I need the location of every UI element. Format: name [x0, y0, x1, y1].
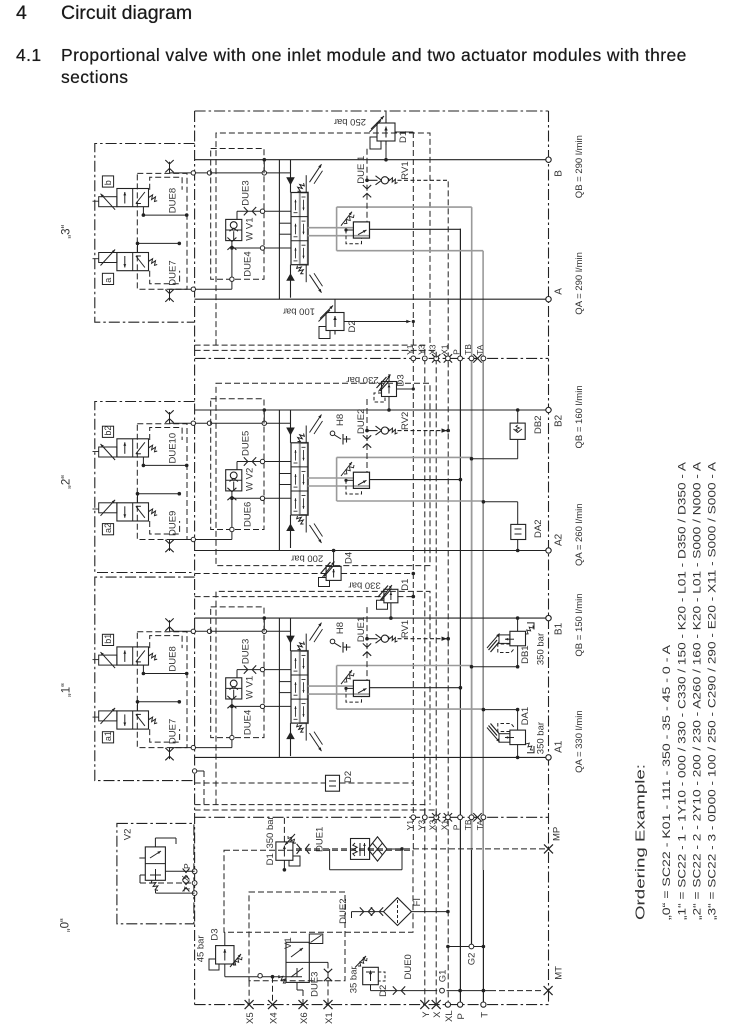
svg-text:QA = 290 l/min: QA = 290 l/min: [574, 252, 585, 315]
svg-text:350 bar: 350 bar: [536, 633, 547, 665]
svg-text:„0“: „0“: [59, 918, 71, 932]
svg-text:B2: B2: [554, 414, 565, 427]
svg-text:X6: X6: [299, 1012, 310, 1024]
svg-text:DB2: DB2: [533, 416, 544, 434]
svg-text:„2“ = SC22 - 2 - 2Y10 - 20: „2“ = SC22 - 2 - 2Y10 - 200 / 230 - A260…: [692, 461, 704, 920]
svg-text:QA = 260 l/min: QA = 260 l/min: [574, 503, 585, 566]
svg-text:DUE1: DUE1: [356, 617, 367, 642]
svg-text:„2“: „2“: [61, 475, 73, 489]
svg-text:G1: G1: [438, 970, 449, 983]
svg-text:DUE4: DUE4: [243, 251, 254, 276]
svg-text:DUE8: DUE8: [168, 188, 179, 213]
svg-text:XL: XL: [444, 1010, 455, 1022]
svg-text:DUE5: DUE5: [241, 431, 252, 456]
svg-text:B1: B1: [554, 622, 565, 635]
svg-text:X: X: [432, 1011, 443, 1018]
svg-text:Y1: Y1: [405, 820, 415, 831]
svg-text:DUE3: DUE3: [241, 180, 252, 205]
svg-text:G2: G2: [467, 953, 478, 966]
svg-text:RV1: RV1: [400, 161, 411, 179]
svg-text:D2: D2: [347, 320, 358, 332]
svg-text:„1“: „1“: [61, 683, 73, 697]
svg-text:T: T: [479, 1012, 490, 1018]
svg-text:X3: X3: [428, 820, 438, 831]
svg-text:DUE3: DUE3: [241, 639, 252, 664]
svg-text:V1: V1: [283, 937, 294, 949]
svg-text:D3: D3: [396, 374, 407, 386]
svg-text:D3: D3: [209, 928, 220, 940]
svg-text:DUE2: DUE2: [338, 898, 349, 923]
svg-text:DUE4: DUE4: [243, 710, 254, 735]
svg-text:RV2: RV2: [400, 412, 411, 430]
svg-text:QB = 290 l/min: QB = 290 l/min: [574, 135, 585, 198]
svg-text:X5: X5: [245, 1012, 256, 1024]
svg-text:TA: TA: [475, 344, 485, 355]
svg-text:W V1: W V1: [245, 676, 256, 699]
svg-text:„3“ = SC22 - 3 - 0D00 - 10: „3“ = SC22 - 3 - 0D00 - 100 / 250 - C290…: [707, 461, 719, 920]
svg-text:D2: D2: [343, 771, 354, 783]
svg-text:RV1: RV1: [400, 620, 411, 638]
svg-text:W V2: W V2: [245, 468, 256, 491]
svg-text:„3“: „3“: [61, 224, 73, 238]
svg-text:350 bar: 350 bar: [536, 722, 547, 754]
svg-text:D1: D1: [265, 853, 276, 865]
svg-text:P: P: [452, 824, 462, 830]
svg-text:D1: D1: [400, 579, 411, 591]
svg-text:b2: b2: [103, 426, 113, 436]
svg-text:DUE0: DUE0: [403, 954, 414, 979]
svg-text:350 bar: 350 bar: [265, 816, 276, 848]
svg-text:DUE 1: DUE 1: [356, 156, 367, 184]
svg-text:B: B: [554, 170, 565, 177]
svg-text:P: P: [182, 863, 192, 869]
svg-text:X1: X1: [324, 1012, 335, 1024]
svg-text:W V1: W V1: [245, 217, 256, 240]
svg-text:H8: H8: [335, 622, 346, 634]
svg-text:DUE1: DUE1: [314, 827, 325, 852]
svg-text:TB: TB: [463, 344, 473, 355]
svg-text:X1: X1: [439, 344, 449, 355]
svg-text:a: a: [103, 278, 113, 283]
svg-text:DUE8: DUE8: [168, 646, 179, 671]
svg-text:DB1: DB1: [520, 645, 531, 663]
svg-text:DA1: DA1: [520, 707, 531, 725]
svg-text:„0“ = SC22 - K01 - 111 - 3: „0“ = SC22 - K01 - 111 - 350 - 35 - 45 -…: [661, 644, 673, 920]
svg-text:A: A: [554, 288, 565, 295]
svg-text:DUE9: DUE9: [168, 511, 179, 536]
svg-text:A2: A2: [554, 533, 565, 546]
svg-text:MP: MP: [552, 827, 563, 841]
svg-text:200 bar: 200 bar: [291, 553, 323, 564]
svg-text:45 bar: 45 bar: [195, 935, 206, 962]
svg-text:a1: a1: [103, 731, 113, 741]
svg-text:MT: MT: [554, 966, 565, 980]
svg-text:D1: D1: [398, 131, 409, 143]
svg-text:„1“ = SC22 - 1 - 1Y10 - 00: „1“ = SC22 - 1 - 1Y10 - 000 / 330 - C330…: [677, 461, 689, 920]
svg-text:A1: A1: [554, 740, 565, 753]
svg-text:DUE7: DUE7: [168, 260, 179, 285]
svg-text:330 bar: 330 bar: [348, 580, 380, 591]
svg-text:P: P: [456, 1013, 467, 1019]
svg-text:Y1: Y1: [405, 344, 415, 355]
svg-text:DUE7: DUE7: [168, 719, 179, 744]
svg-text:230 bar: 230 bar: [346, 374, 378, 385]
svg-text:P: P: [452, 349, 462, 355]
svg-text:b1: b1: [103, 634, 113, 644]
svg-text:Y3: Y3: [416, 820, 426, 831]
svg-text:V2: V2: [122, 829, 133, 841]
svg-text:FI: FI: [412, 898, 423, 906]
svg-text:DUE3: DUE3: [309, 972, 320, 997]
svg-text:TA: TA: [475, 820, 485, 831]
svg-text:Y: Y: [421, 1011, 432, 1018]
svg-text:QA = 330 l/min: QA = 330 l/min: [574, 710, 585, 773]
svg-text:QB = 150 l/min: QB = 150 l/min: [574, 593, 585, 656]
svg-text:X1: X1: [439, 820, 449, 831]
svg-text:D4: D4: [344, 552, 355, 564]
svg-text:DUE10: DUE10: [168, 433, 179, 464]
svg-text:35 bar: 35 bar: [349, 966, 360, 993]
svg-text:X4: X4: [269, 1012, 280, 1024]
svg-text:QB = 160 l/min: QB = 160 l/min: [574, 385, 585, 448]
svg-text:DUE2: DUE2: [356, 409, 367, 434]
svg-text:b: b: [103, 180, 113, 185]
svg-text:DUE6: DUE6: [243, 502, 254, 527]
svg-text:H8: H8: [335, 414, 346, 426]
svg-text:DA2: DA2: [533, 520, 544, 538]
svg-text:a2: a2: [103, 523, 113, 533]
svg-text:Ordering Example:: Ordering Example:: [634, 764, 648, 920]
svg-text:TB: TB: [463, 819, 473, 830]
svg-text:100 bar: 100 bar: [283, 306, 315, 317]
svg-text:250 bar: 250 bar: [334, 116, 366, 127]
